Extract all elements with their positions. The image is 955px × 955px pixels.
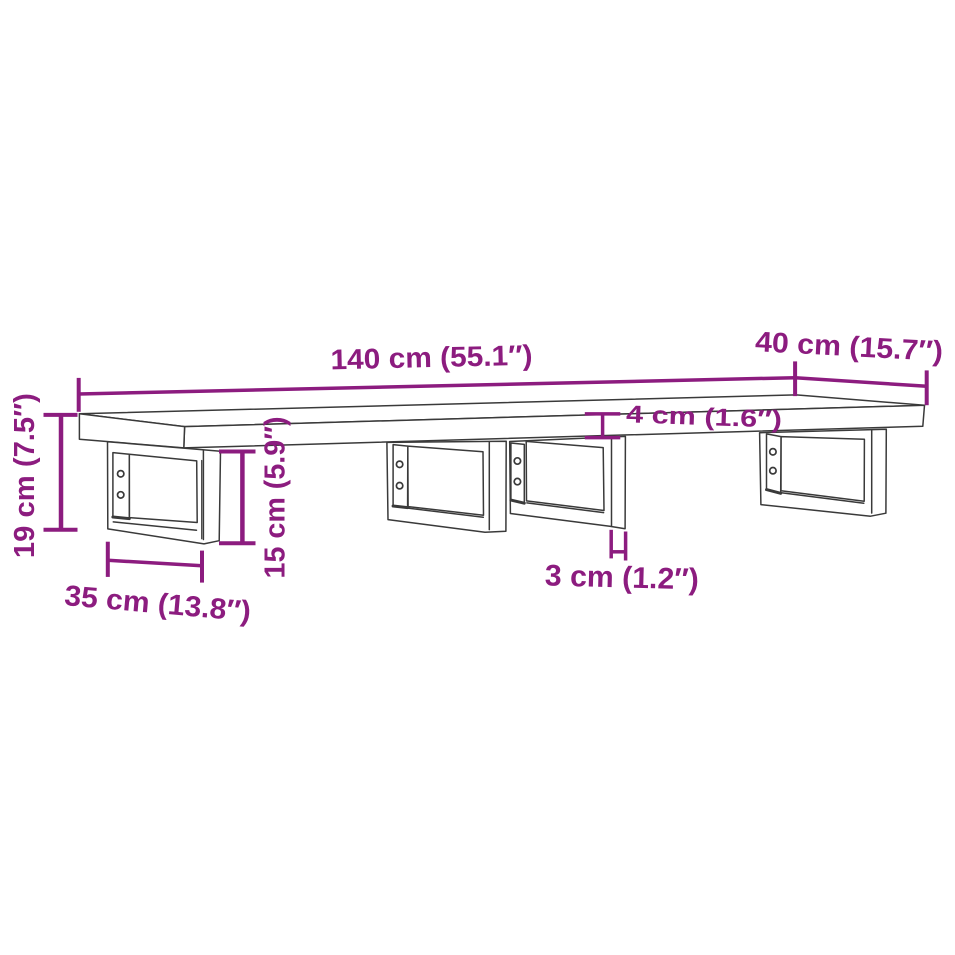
svg-text:3 cm (1.2″): 3 cm (1.2″) [544, 559, 699, 596]
svg-text:140 cm (55.1″): 140 cm (55.1″) [330, 340, 533, 377]
svg-text:19 cm (7.5″): 19 cm (7.5″) [9, 393, 41, 558]
svg-text:4 cm (1.6″): 4 cm (1.6″) [626, 401, 783, 433]
svg-text:15 cm (5.9″): 15 cm (5.9″) [260, 417, 292, 579]
